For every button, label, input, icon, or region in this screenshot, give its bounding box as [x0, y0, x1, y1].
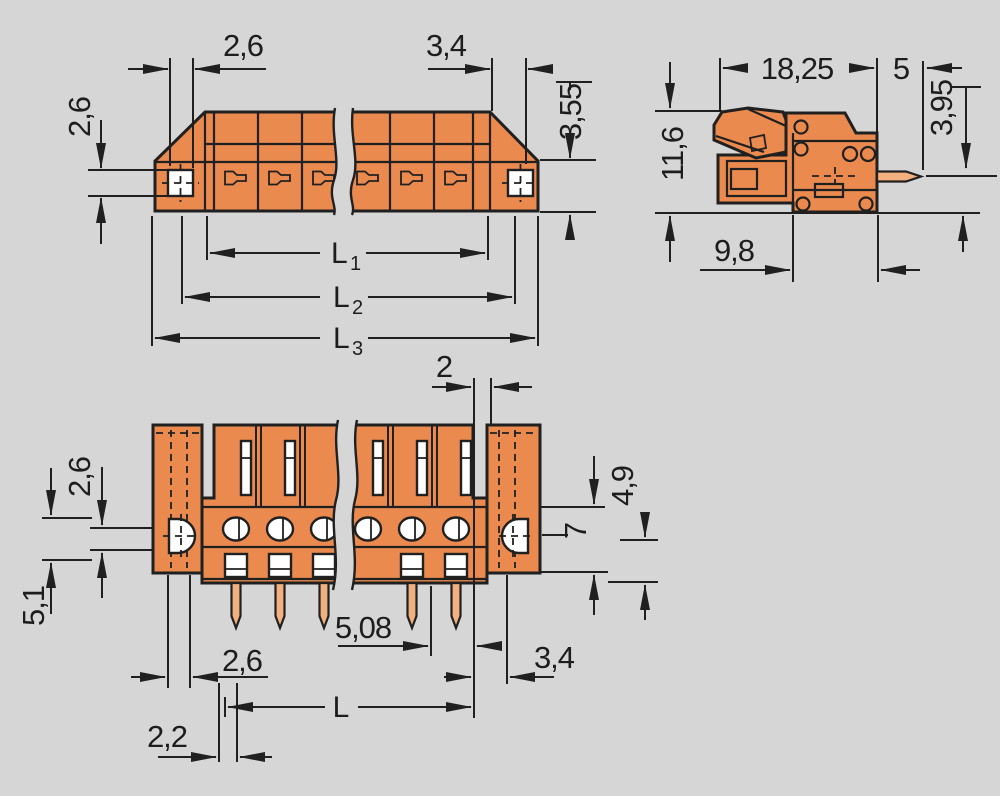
side-view-solder-pin [877, 172, 921, 182]
drawing-svg: 2,6 3,4 2,6 3,55 [0, 0, 1000, 796]
top-view: 2,6 3,4 2,6 3,55 [62, 28, 596, 360]
dim-front-gap: 2 [436, 349, 452, 384]
dim-front-hole-width: 2,6 [222, 643, 262, 678]
dim-side-pin-offset: 3,95 [924, 80, 959, 136]
dim-front-mid-height: 7 [558, 523, 593, 539]
dim-side-depth: 18,25 [761, 51, 834, 86]
dim-L3-sub: 3 [352, 338, 363, 360]
dim-front-length: L [333, 691, 350, 724]
dim-L3: L [333, 322, 350, 355]
dim-top-square-height: 2,6 [62, 97, 97, 137]
dim-L2: L [333, 281, 350, 314]
dim-front-pitch: 5,08 [335, 610, 391, 645]
front-view-right-flange [487, 425, 540, 573]
dim-top-right-width: 3,4 [426, 28, 467, 63]
front-view: 2 2,6 5,1 4,9 7 [16, 349, 658, 762]
top-view-break [332, 108, 356, 215]
dim-top-right-height: 3,55 [553, 84, 588, 140]
dim-side-height: 11,6 [655, 127, 690, 181]
dim-L1-sub: 1 [350, 253, 361, 275]
dim-L1: L [331, 237, 348, 270]
dim-front-pin-offset: 2,2 [147, 719, 187, 754]
front-view-left-flange [153, 425, 202, 573]
side-view-lever [714, 108, 786, 158]
dim-L2-sub: 2 [352, 297, 363, 319]
side-view: 18,25 5 3,95 11,6 9,8 [655, 51, 997, 282]
top-view-flange-hole-right [502, 164, 539, 202]
dim-top-square-width: 2,6 [223, 28, 263, 63]
dim-front-flange-span: 5,1 [16, 586, 51, 626]
dim-front-lower-height: 4,9 [605, 466, 640, 506]
dim-front-hole-height: 2,6 [62, 457, 97, 497]
technical-drawing-canvas: 2,6 3,4 2,6 3,55 [0, 0, 1000, 796]
front-view-break [333, 420, 357, 590]
dim-front-right-margin: 3,4 [534, 640, 575, 675]
dim-side-flange-depth: 9,8 [714, 233, 754, 268]
dim-side-pin-length: 5 [893, 51, 909, 86]
